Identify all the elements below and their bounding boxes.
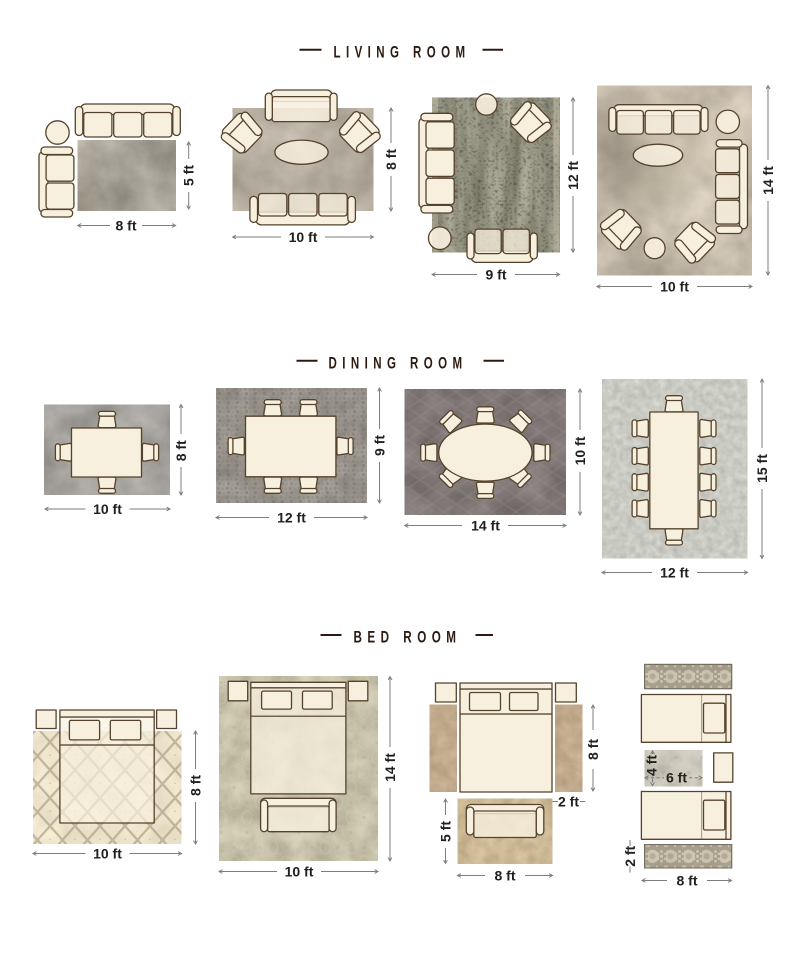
svg-text:8 ft: 8 ft: [188, 775, 204, 796]
svg-text:LIVING ROOM: LIVING ROOM: [334, 43, 471, 62]
svg-text:14 ft: 14 ft: [471, 518, 500, 534]
svg-text:BED ROOM: BED ROOM: [354, 627, 462, 646]
svg-text:8 ft: 8 ft: [383, 149, 399, 170]
svg-text:12 ft: 12 ft: [660, 565, 689, 581]
svg-text:6 ft: 6 ft: [666, 770, 687, 786]
svg-text:10 ft: 10 ft: [660, 279, 689, 295]
svg-text:12 ft: 12 ft: [277, 510, 306, 526]
svg-text:8 ft: 8 ft: [585, 739, 601, 760]
svg-text:10 ft: 10 ft: [572, 436, 588, 465]
svg-text:12 ft: 12 ft: [565, 161, 581, 190]
svg-text:15 ft: 15 ft: [754, 454, 770, 483]
svg-text:10 ft: 10 ft: [285, 864, 314, 880]
svg-text:5 ft: 5 ft: [181, 165, 197, 186]
svg-text:8 ft: 8 ft: [173, 440, 189, 461]
svg-text:5 ft: 5 ft: [438, 821, 454, 842]
svg-text:10 ft: 10 ft: [289, 229, 318, 245]
svg-text:DINING ROOM: DINING ROOM: [329, 353, 468, 372]
svg-text:8 ft: 8 ft: [495, 868, 516, 884]
svg-text:14 ft: 14 ft: [382, 753, 398, 782]
svg-text:8 ft: 8 ft: [677, 873, 698, 889]
svg-text:4 ft: 4 ft: [644, 755, 660, 776]
svg-text:2 ft: 2 ft: [558, 794, 579, 810]
svg-text:9 ft: 9 ft: [486, 267, 507, 283]
svg-text:9 ft: 9 ft: [372, 435, 388, 456]
svg-text:10 ft: 10 ft: [93, 501, 122, 517]
svg-text:14 ft: 14 ft: [760, 166, 776, 195]
svg-text:10 ft: 10 ft: [93, 846, 122, 862]
svg-text:8 ft: 8 ft: [116, 218, 137, 234]
svg-text:2 ft: 2 ft: [622, 845, 638, 866]
